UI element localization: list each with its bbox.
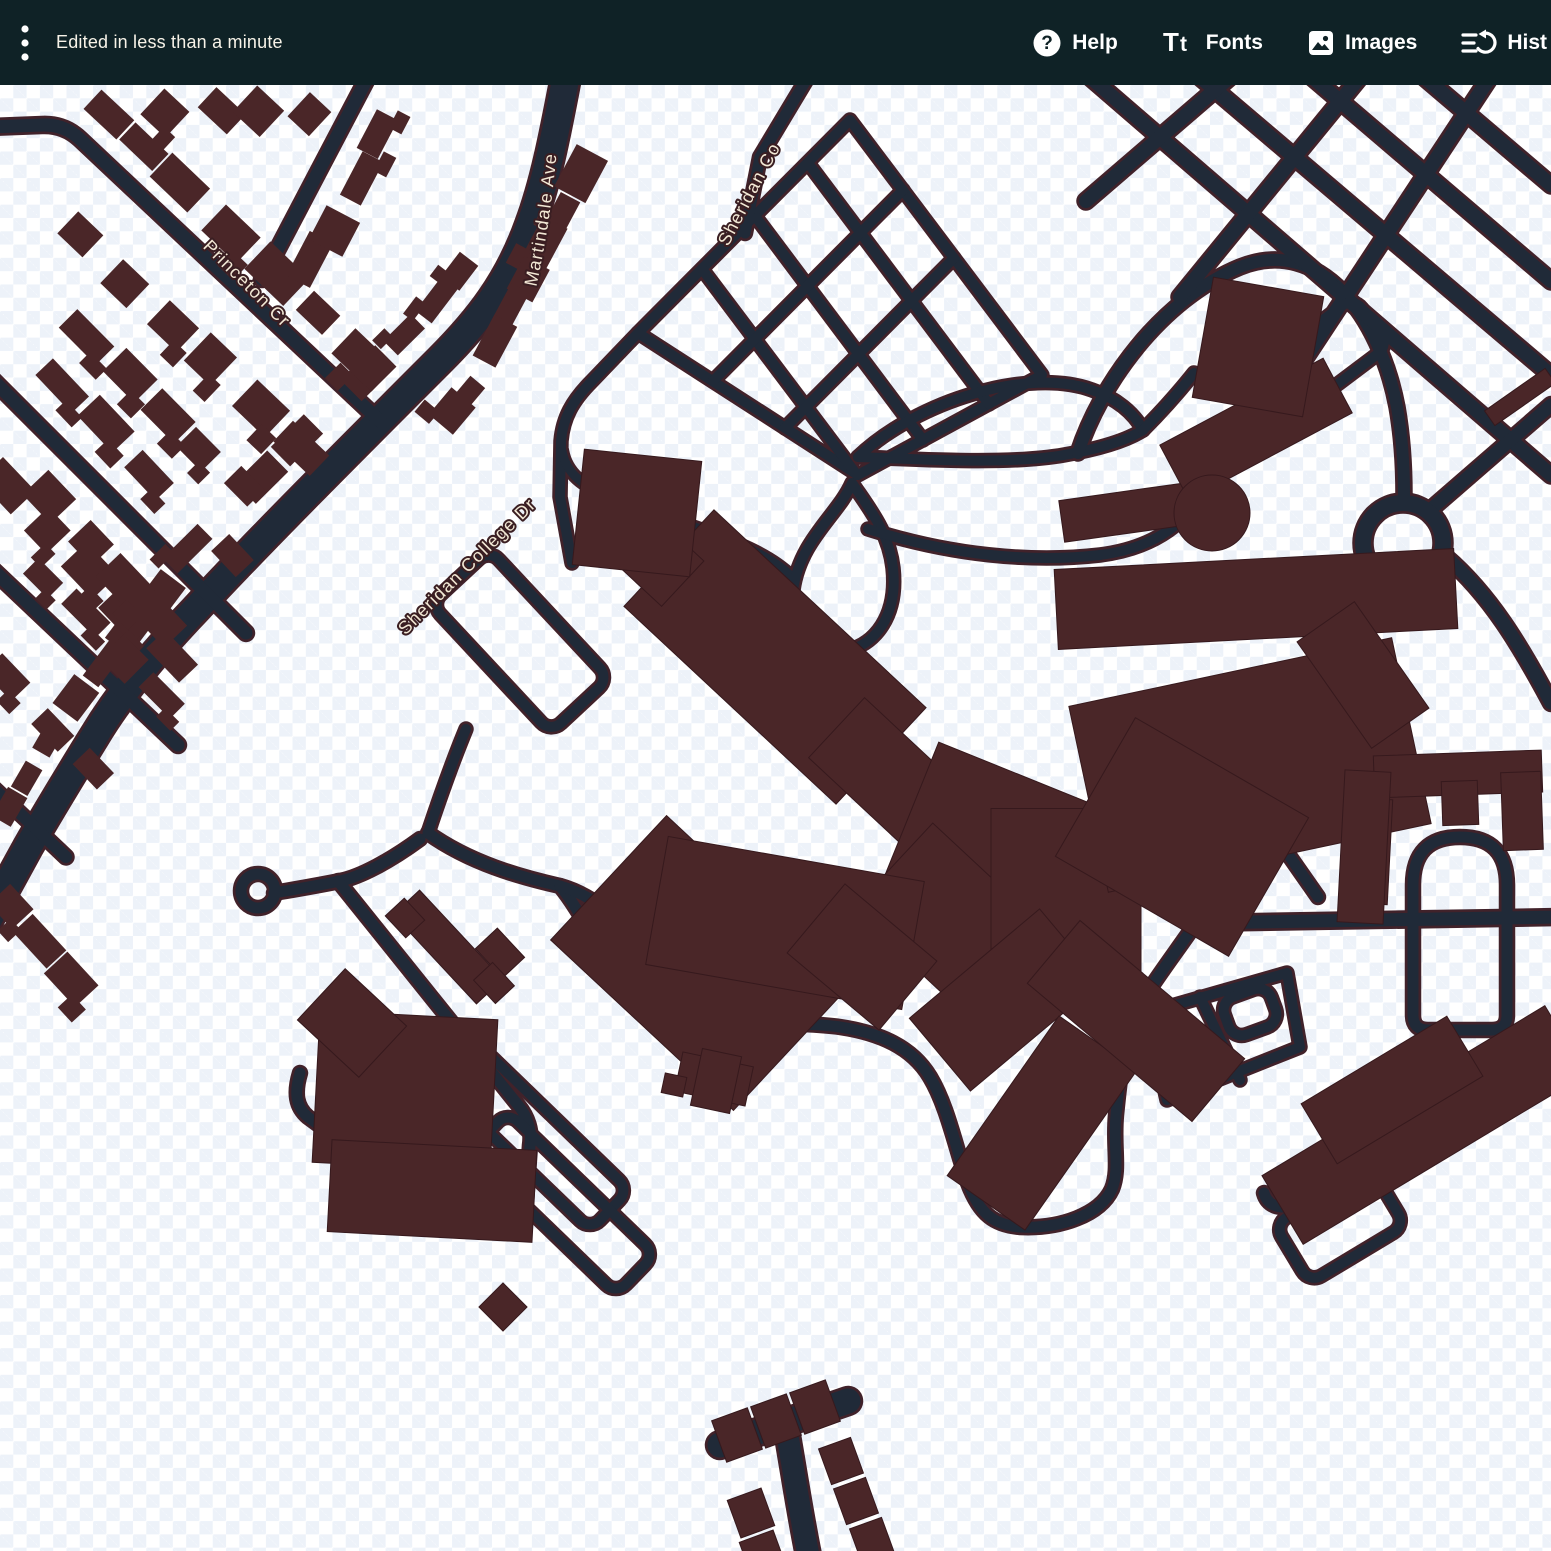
svg-text:t: t bbox=[1180, 33, 1187, 56]
buildings-layer bbox=[0, 86, 1551, 1551]
edit-status-text: Edited in less than a minute bbox=[56, 32, 283, 53]
svg-text:T: T bbox=[1163, 28, 1179, 57]
kebab-menu-icon[interactable] bbox=[14, 20, 36, 66]
help-circle-icon: ? bbox=[1032, 28, 1062, 58]
map-canvas[interactable]: Princeton Cr Martindale Ave Sheridan Col… bbox=[0, 85, 1551, 1551]
images-button[interactable]: Images bbox=[1307, 29, 1417, 57]
history-button[interactable]: Hist bbox=[1461, 29, 1547, 57]
text-fonts-icon: T t bbox=[1162, 28, 1196, 58]
street-label-sheridan-college: Sheridan College Dr bbox=[394, 494, 540, 638]
image-icon bbox=[1307, 29, 1335, 57]
help-button[interactable]: ? Help bbox=[1032, 28, 1118, 58]
history-icon bbox=[1461, 29, 1497, 57]
fonts-button[interactable]: T t Fonts bbox=[1162, 28, 1263, 58]
toolbar: Edited in less than a minute ? Help T t … bbox=[0, 0, 1551, 85]
images-label: Images bbox=[1345, 31, 1417, 55]
svg-text:?: ? bbox=[1041, 33, 1053, 54]
history-label: Hist bbox=[1507, 31, 1547, 55]
toolbar-actions: ? Help T t Fonts Images bbox=[1032, 28, 1551, 58]
kebab-dots bbox=[20, 20, 30, 66]
help-label: Help bbox=[1072, 31, 1118, 55]
fonts-label: Fonts bbox=[1206, 31, 1263, 55]
